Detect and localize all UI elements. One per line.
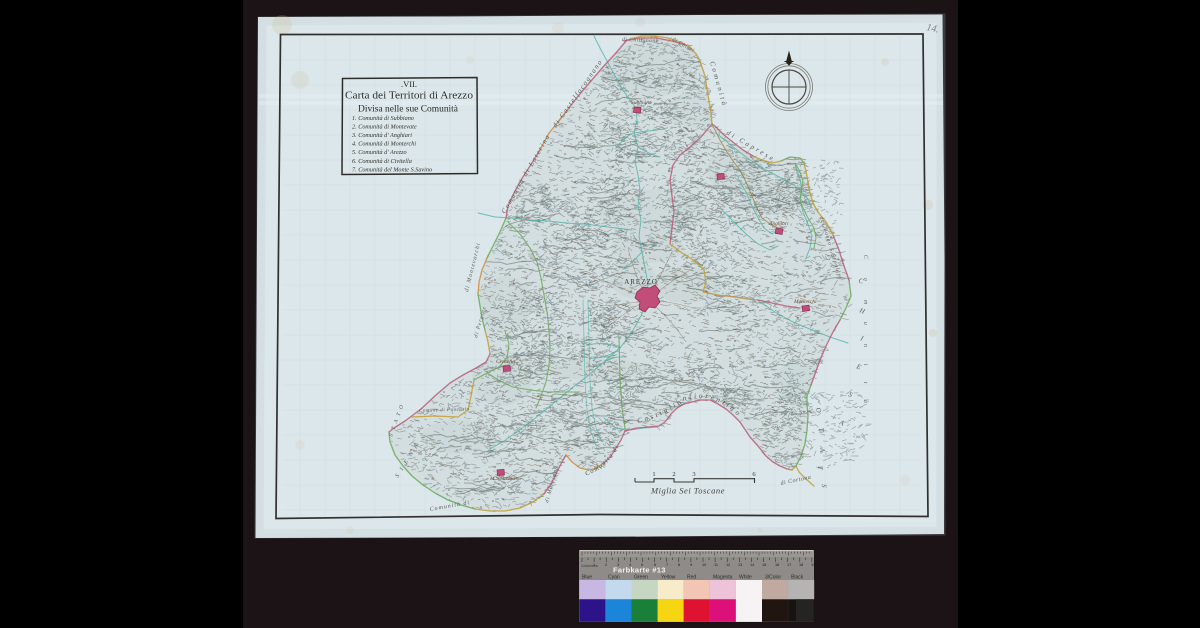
svg-text:AREZZO: AREZZO (624, 278, 658, 286)
svg-text:8: 8 (678, 563, 680, 567)
svg-text:Civitella: Civitella (496, 359, 515, 365)
svg-text:3. Comunità d' Anghiari: 3. Comunità d' Anghiari (351, 132, 412, 139)
svg-text:3: 3 (692, 471, 695, 478)
svg-text:à: à (862, 400, 868, 404)
svg-text:Yellow: Yellow (661, 575, 676, 581)
svg-text:13: 13 (738, 563, 742, 567)
svg-text:Farbkarte #13: Farbkarte #13 (613, 566, 666, 575)
svg-text:3/Color: 3/Color (765, 575, 781, 581)
svg-text:7. Comunità del Monte S.Savi: 7. Comunità del Monte S.Savino (352, 166, 432, 173)
svg-text:7: 7 (666, 563, 668, 567)
svg-text:Carta dei Territori di Arezzo: Carta dei Territori di Arezzo (345, 90, 474, 102)
svg-text:White: White (739, 575, 752, 581)
svg-text:Blue: Blue (582, 575, 592, 581)
svg-text:16: 16 (775, 563, 779, 567)
svg-text:1: 1 (652, 471, 655, 478)
svg-text:11: 11 (714, 563, 718, 567)
svg-text:1. Comunità di Subbiano: 1. Comunità di Subbiano (352, 115, 414, 122)
svg-text:17: 17 (787, 563, 791, 567)
svg-text:Magenta: Magenta (713, 575, 733, 581)
svg-text:Red: Red (687, 575, 696, 581)
svg-text:10: 10 (702, 563, 706, 567)
svg-text:.VII.: .VII. (401, 79, 417, 89)
svg-text:Green: Green (634, 575, 648, 581)
svg-text:Cyan: Cyan (608, 575, 620, 581)
svg-text:Miglia Sei Toscane: Miglia Sei Toscane (650, 486, 725, 496)
svg-text:2. Comunità di Montevate: 2. Comunità di Montevate (352, 124, 417, 131)
svg-text:Black: Black (791, 575, 804, 581)
svg-text:6. Comunità di Civitella: 6. Comunità di Civitella (352, 158, 412, 165)
svg-text:5. Comunità d' Arezzo: 5. Comunità d' Arezzo (352, 149, 407, 156)
svg-text:2: 2 (672, 471, 675, 478)
svg-text:14: 14 (750, 563, 754, 567)
svg-text:15: 15 (762, 563, 766, 567)
svg-text:19: 19 (811, 563, 815, 567)
svg-text:Monterchi: Monterchi (793, 299, 817, 305)
svg-text:9: 9 (690, 563, 692, 567)
svg-text:Anghiari: Anghiari (768, 221, 789, 227)
svg-text:18: 18 (799, 563, 803, 567)
svg-text:M.S.Savino: M.S.Savino (489, 476, 515, 482)
svg-text:n: n (862, 344, 868, 348)
svg-text:Divisa nelle sue Comunità: Divisa nelle sue Comunità (358, 105, 459, 115)
svg-text:Subbiano: Subbiano (631, 100, 652, 106)
svg-text:Colorimetric: Colorimetric (581, 564, 598, 568)
svg-text:u: u (862, 322, 868, 326)
svg-text:12: 12 (726, 563, 730, 567)
svg-text:2: 2 (605, 563, 607, 567)
svg-text:4. Comunità di Monterchi: 4. Comunità di Monterchi (352, 141, 416, 148)
